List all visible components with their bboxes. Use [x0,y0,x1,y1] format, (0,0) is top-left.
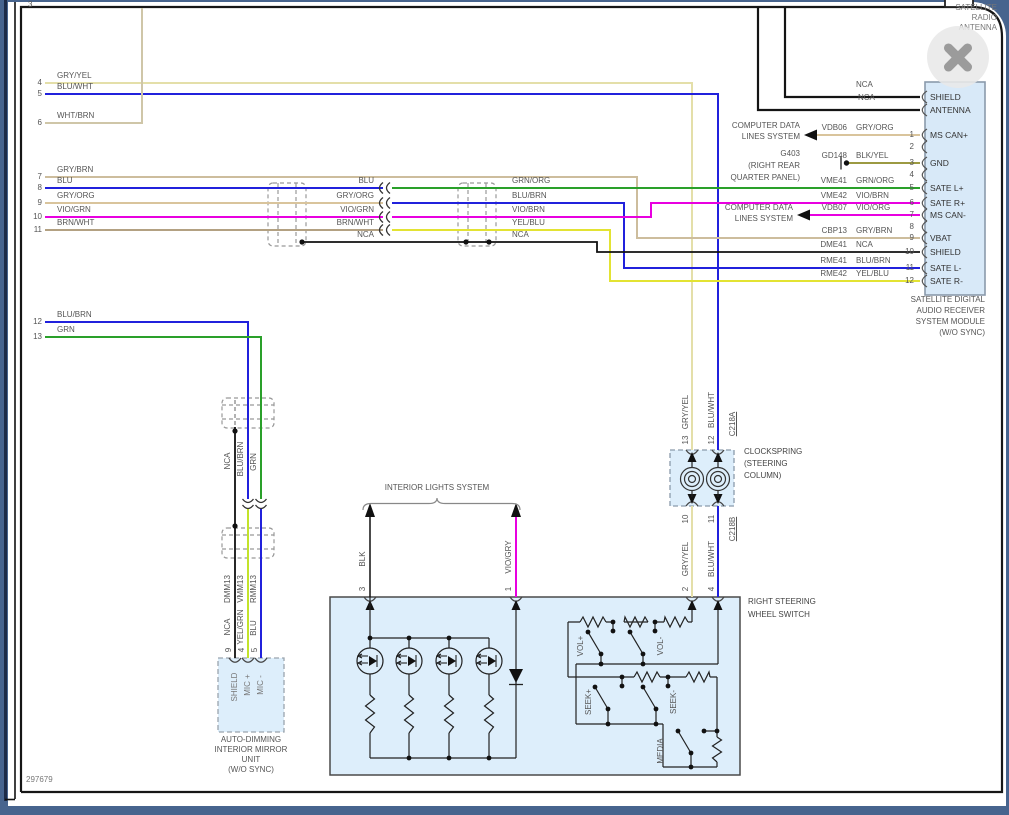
circuit-code: VDB07 [787,203,847,213]
wire-label: BLU/WHT [707,541,717,577]
system-ref: LINES SYSTEM [683,214,793,224]
pin-number: 1 [504,587,514,591]
wire-label: BRN/WHT [57,218,94,228]
wire-label: WHT/BRN [57,111,94,121]
page-stack-edges [5,0,15,801]
wire-label: VIO/GRY [504,540,514,573]
module-caption: AUDIO RECEIVER [865,306,985,316]
pin-number: 2 [681,587,691,591]
wire-label: NCA [512,230,529,240]
wire-number: 4 [28,78,42,88]
wire-label: NCA [856,240,873,250]
circuit-code: VDB06 [787,123,847,133]
connector-id: C218B [728,517,738,541]
clockspring-caption: (STEERING [744,459,788,469]
wire-label: NCA [223,453,233,470]
circuit-code: VME41 [787,176,847,186]
wire-label: BLU/BRN [57,310,92,320]
wire-number-3: 3 [28,0,42,10]
close-icon[interactable] [927,26,989,88]
wire-label: GRY/YEL [681,542,691,577]
wire-label: YEL/BLU [856,269,889,279]
circuit-code: DME41 [787,240,847,250]
pin-number: 2 [898,142,914,152]
circuit-code: RME42 [787,269,847,279]
pin-label: SATE L- [930,263,962,273]
pin-label: SATE R- [930,276,963,286]
wire-label: GRY/YEL [681,395,691,430]
switch-label: SEEK- [669,690,679,714]
wire-number: 6 [28,118,42,128]
circuit-code: CBP13 [787,226,847,236]
pin-label: SHIELD [930,92,961,102]
wire-label: GRN [249,453,259,471]
ground-ref: QUARTER PANEL) [690,173,800,183]
wires [45,8,920,658]
pin-number: 1 [898,130,914,140]
pin-number: 12 [898,276,914,286]
wire-label: VIO/ORG [856,203,890,213]
switch-label: SEEK+ [584,689,594,715]
clockspring-caption: CLOCKSPRING [744,447,802,457]
antenna-title: RADIO [917,13,997,23]
pin-number: 3 [358,587,368,591]
pin-label: MS CAN- [930,210,966,220]
antenna-wires [758,7,920,110]
clockspring-caption: COLUMN) [744,471,781,481]
switch-label: VOL- [656,637,666,656]
pin-label: SHIELD [230,673,240,702]
circuit-code: VMM13 [236,575,246,603]
switch-label: VOL+ [576,636,586,657]
wire-label: NCA [223,619,233,636]
wire-label: GRN/ORG [512,176,550,186]
pin-number: 11 [898,263,914,273]
wiring-diagram-page: 3 4 5 6 7 8 9 10 11 12 13 GRY/YEL BLU/WH… [0,0,1009,815]
pin-label: GND [930,158,949,168]
interior-lights-brace [363,498,520,510]
ground-ref: (RIGHT REAR [690,161,800,171]
antenna-title: SATELLITE [917,3,997,13]
wire-label: GRY/ORG [304,191,374,201]
wire-label: BLU/BRN [236,442,246,477]
wire-label: YEL/GRN [236,609,246,644]
mirror-caption: (W/O SYNC) [196,765,306,775]
pin-number: 4 [707,587,717,591]
wire-label: VIO/BRN [512,205,545,215]
clockspring-box [670,450,734,506]
module-caption: (W/O SYNC) [865,328,985,338]
system-ref: COMPUTER DATA [683,203,793,213]
wire-label: VIO/BRN [856,191,889,201]
wire-label: NCA [858,93,875,103]
system-ref: COMPUTER DATA [690,121,800,131]
wire-label: GRY/ORG [57,191,95,201]
pin-label: ANTENNA [930,105,971,115]
pin-label: MIC - [256,675,266,695]
connector-id: C218A [728,412,738,436]
wire-label: BLU [304,176,374,186]
switch-caption: WHEEL SWITCH [748,610,810,620]
pin-label: MIC + [243,674,253,696]
circuit-code: VME42 [787,191,847,201]
wire-number: 5 [28,89,42,99]
switch-label: MEDIA [656,738,666,763]
wire-label: GRN/ORG [856,176,894,186]
pin-number: 9 [224,648,234,652]
pin-number: 9 [898,233,914,243]
wire-number: 9 [28,198,42,208]
wire-label: BLU [57,176,73,186]
pin-number: 6 [898,198,914,208]
circuit-code: RME41 [787,256,847,266]
wire-label: BLU/WHT [707,392,717,428]
wire-label: GRY/BRN [57,165,93,175]
reference-arrows [365,130,817,611]
wire-number: 12 [28,317,42,327]
circuit-code: GD148 [787,151,847,161]
pin-number: 5 [898,183,914,193]
switch-caption: RIGHT STEERING [748,597,816,607]
pin-number: 10 [898,247,914,257]
system-ref: INTERIOR LIGHTS SYSTEM [357,483,517,493]
wire-label: BLU/BRN [856,256,891,266]
sheet-number: 297679 [26,775,53,785]
module-caption: SATELLITE DIGITAL [865,295,985,305]
pin-number: 7 [898,210,914,220]
mirror-caption: AUTO-DIMMING [196,735,306,745]
pin-number: 3 [898,158,914,168]
pin-label: SATE R+ [930,198,965,208]
pin-number: 11 [707,515,717,523]
wire-number: 13 [28,332,42,342]
wire-label: GRY/BRN [856,226,892,236]
wire-label: BLK/YEL [856,151,888,161]
circuit-code: DMM13 [223,575,233,603]
wire-label: BLU [249,620,259,636]
wire-label: YEL/BLU [512,218,545,228]
wire-number: 7 [28,172,42,182]
pin-number: 12 [707,436,717,445]
wire-label: VIO/GRN [304,205,374,215]
module-caption: SYSTEM MODULE [865,317,985,327]
ground-ref: G403 [690,149,800,159]
pin-number: 13 [681,436,691,445]
pin-number: 4 [898,170,914,180]
system-ref: LINES SYSTEM [690,132,800,142]
pin-number: 4 [237,648,247,652]
wire-label: GRY/YEL [57,71,92,81]
pin-label: VBAT [930,233,952,243]
pin-label: SATE L+ [930,183,964,193]
wire-number: 11 [28,225,42,235]
pin-number: 10 [681,515,691,524]
pin-label: MS CAN+ [930,130,968,140]
pin-number: 5 [250,648,260,652]
wire-number: 8 [28,183,42,193]
wire-label: BLU/BRN [512,191,547,201]
mirror-caption: INTERIOR MIRROR [196,745,306,755]
wire-label: BLU/WHT [57,82,93,92]
wire-label: BRN/WHT [304,218,374,228]
wire-label: GRY/ORG [856,123,894,133]
wire-label: GRN [57,325,75,335]
wire-label: BLK [358,551,368,566]
circuit-code: RMM13 [249,575,259,603]
pin-label: SHIELD [930,247,961,257]
mirror-caption: UNIT [196,755,306,765]
pin-number: 8 [898,222,914,232]
wire-label: VIO/GRN [57,205,91,215]
wire-number: 10 [28,212,42,222]
wire-label: NCA [304,230,374,240]
wire-label: NCA [856,80,873,90]
